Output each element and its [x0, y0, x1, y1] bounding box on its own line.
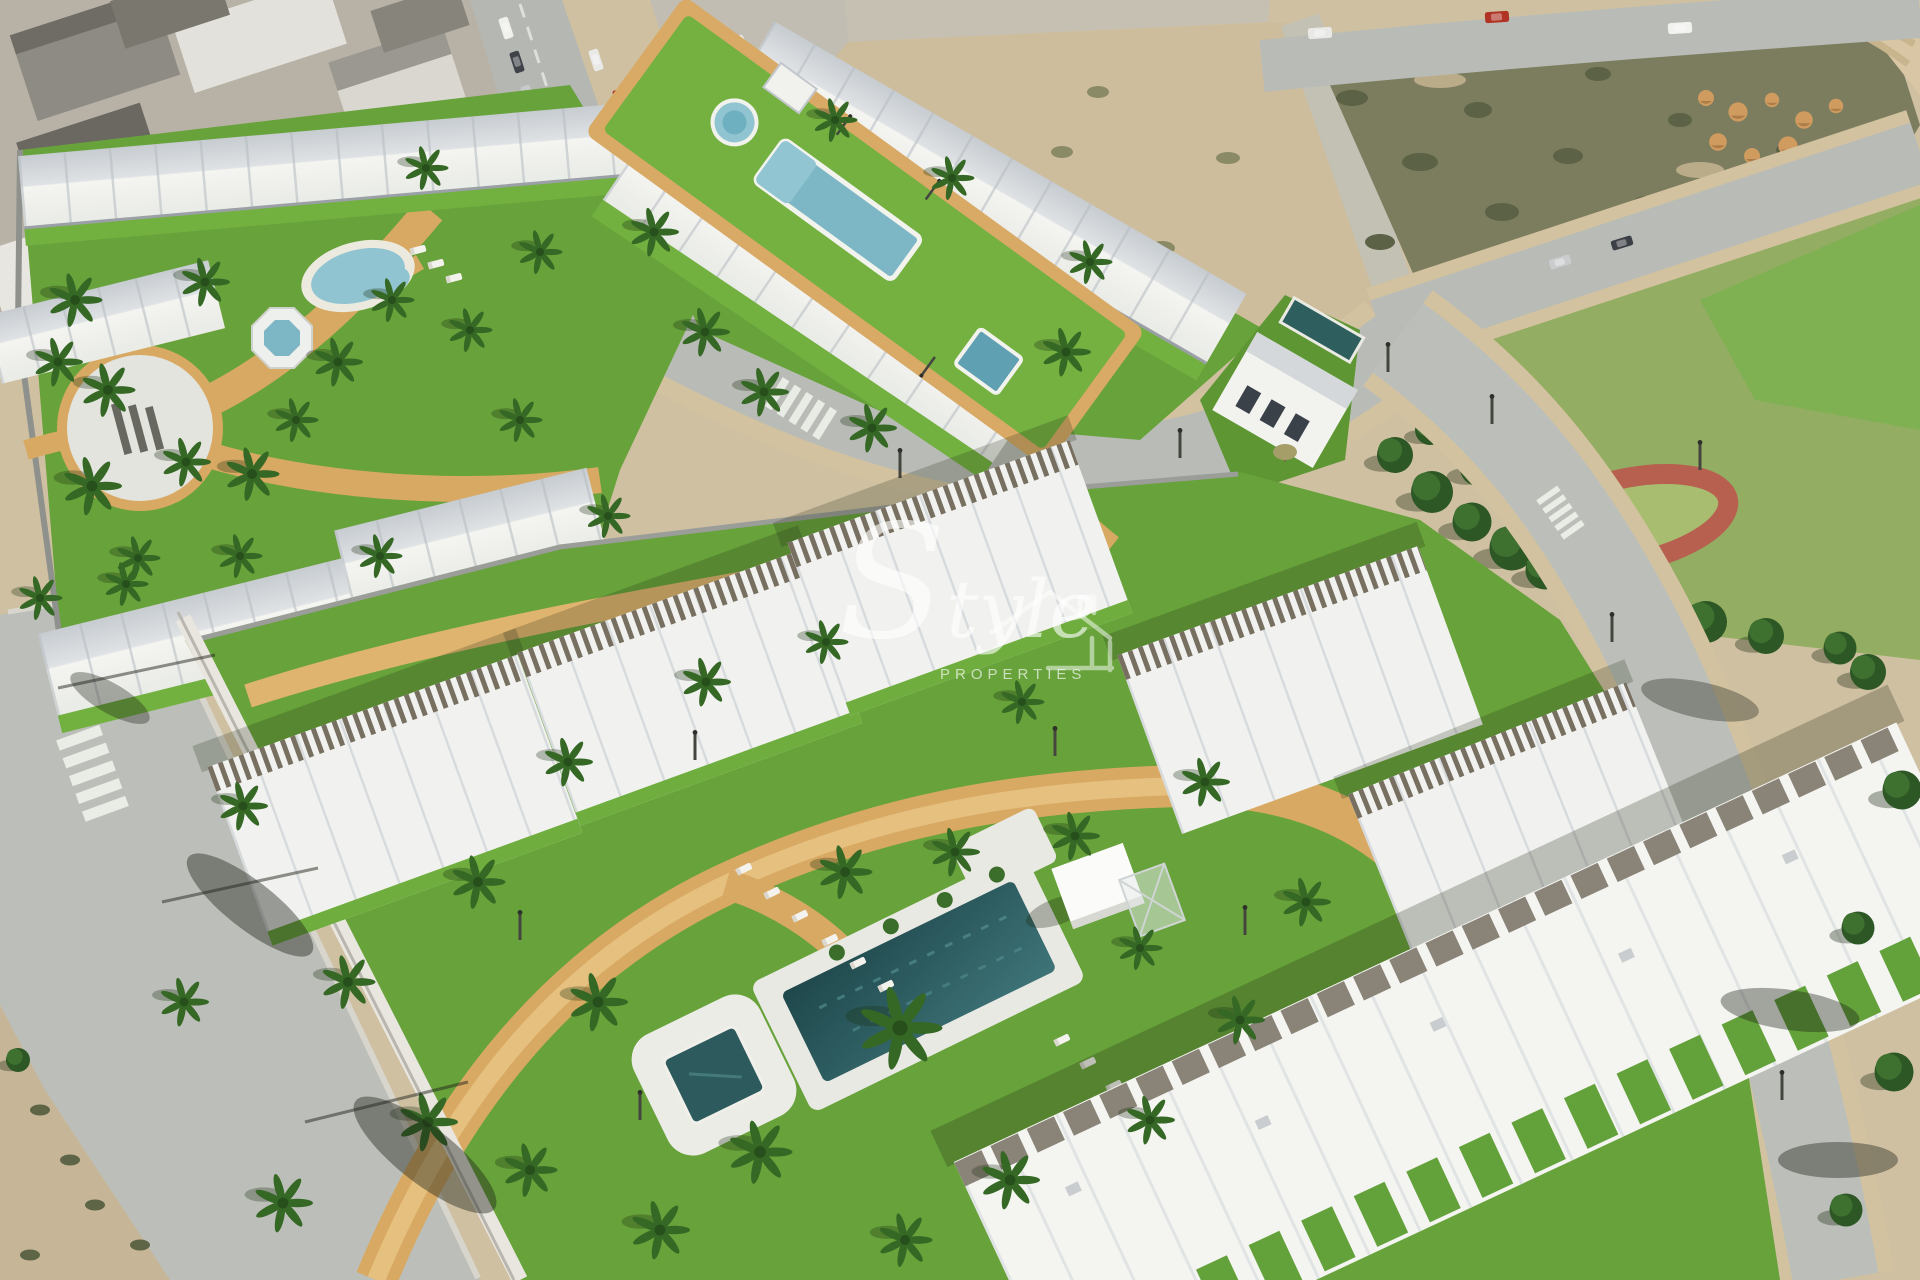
- red-car: [1485, 11, 1510, 24]
- render-scene: [0, 0, 1920, 1280]
- octagon-fountain: [252, 308, 312, 368]
- aerial-render-image: Style PROPERTIES: [0, 0, 1920, 1280]
